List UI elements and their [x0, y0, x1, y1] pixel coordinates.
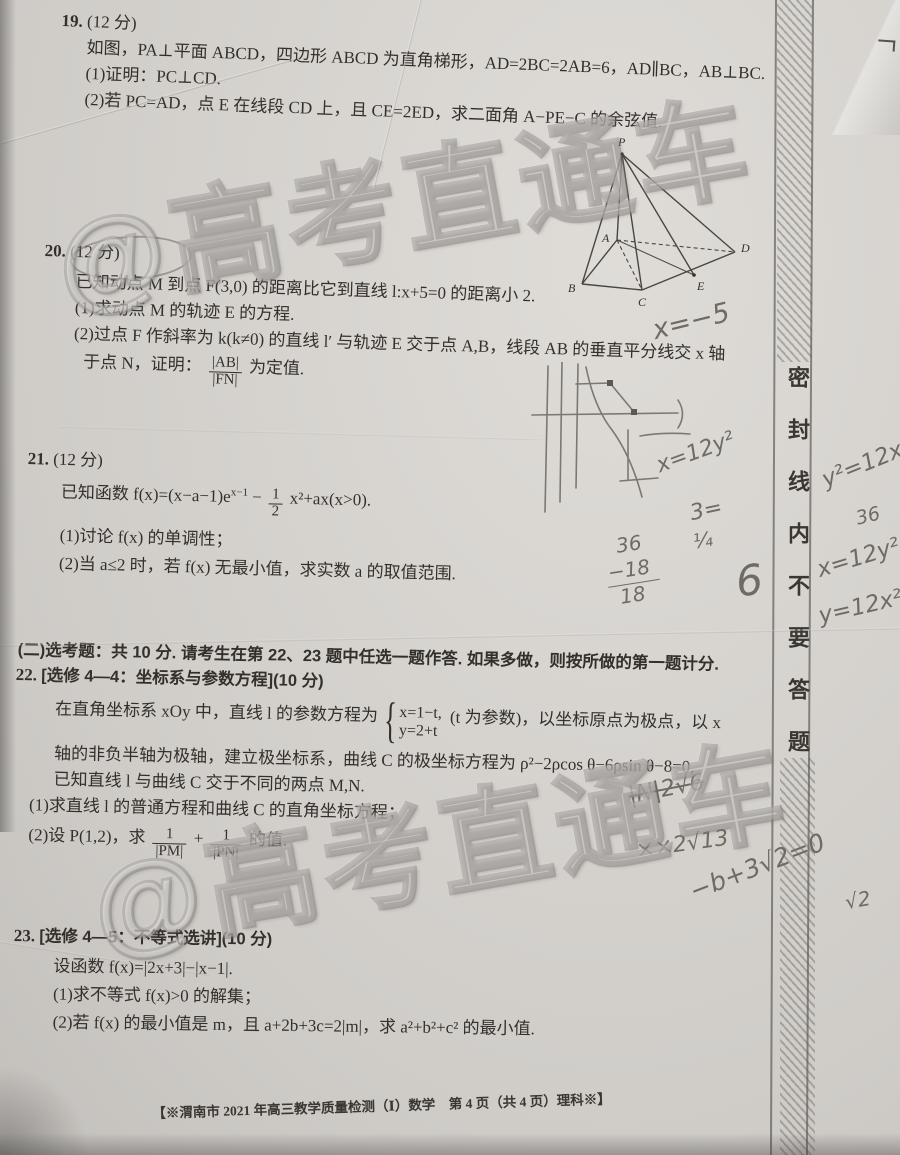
seal-hatch-top: [777, 0, 812, 362]
handwriting-y-12x2: y=12x²: [816, 585, 900, 629]
q22-frac2-numerator: 1: [210, 828, 242, 845]
seal-hatch-bottom: [780, 758, 815, 1155]
q23-title: [选修 4—5：不等式选讲](10 分): [39, 927, 272, 948]
q19-item-1: (1)证明：PC⊥CD.: [85, 63, 221, 90]
q22-stem-line1: 在直角坐标系 xOy 中，直线 l 的参数方程为 x=1−t, y=2+t (t…: [55, 697, 722, 748]
q19-points: (12 分): [87, 12, 137, 33]
fold-crease: [60, 426, 540, 441]
question-23: 23. [选修 4—5：不等式选讲](10 分) 设函数 f(x)=|2x+3|…: [12, 925, 754, 1055]
q22-fraction-PM: 1 |PM|: [152, 827, 186, 860]
photo-corner-shadow: [0, 1065, 90, 1155]
paper-corner-crease: [830, 0, 900, 135]
q21-stem: 已知函数 f(x)=(x−a−1)ex−1 − 1 2 x²+ax(x>0).: [60, 481, 371, 523]
q19-number: 19.: [61, 11, 83, 31]
q20-item-2b-suffix: 为定值.: [249, 357, 305, 378]
q22-item-2-prefix: (2)设 P(1,2)，求: [28, 825, 145, 846]
q19-label-P: P: [617, 135, 626, 149]
photo-edge-shadow-bottom: [0, 1133, 900, 1155]
page-footer: 【※渭南市 2021 年高三教学质量检测（Ⅰ）数学 第 4 页（共 4 页）理科…: [152, 1088, 611, 1122]
q19-item-2: (2)若 PC=AD，点 E 在线段 CD 上，且 CE=2ED，求二面角 A−…: [84, 89, 663, 133]
handwriting-18: 18: [618, 581, 647, 609]
q20-fraction-AB-FN: |AB| |FN|: [208, 355, 242, 389]
q23-number: 23.: [14, 926, 36, 945]
q22-stem-suffix: (t 为参数)，以坐标原点为极点，以 x: [450, 707, 721, 732]
q20-item-2b: 于点 N，证明： |AB| |FN| 为定值.: [82, 351, 304, 391]
q21-frac-numerator: 1: [269, 487, 283, 504]
q20-item-1: (1)求动点 M 的轨迹 E 的方程.: [75, 297, 295, 326]
q22-item-2: (2)设 P(1,2)，求 1 |PM| + 1 |PN| 的值.: [28, 824, 287, 862]
q19-label-E: E: [696, 279, 705, 293]
q22-item-1: (1)求直线 l 的普通方程和曲线 C 的直角坐标方程；: [29, 794, 405, 824]
q21-fraction-half: 1 2: [268, 487, 282, 520]
q21-minus: −: [252, 488, 262, 507]
q23-item-1: (1)求不等式 f(x)>0 的解集；: [53, 984, 261, 1009]
q21-exponent: x−1: [231, 486, 249, 498]
q22-stem-line3: 已知直线 l 与曲线 C 交于不同的两点 M,N.: [53, 769, 365, 798]
q22-frac1-numerator: 1: [153, 827, 187, 844]
q21-number: 21.: [27, 449, 49, 469]
handwriting-root2: √2: [843, 886, 872, 914]
handwriting-quarter: ¼: [691, 526, 714, 553]
figure-pyramid: P A B C D E: [560, 132, 780, 312]
q19-label-A: A: [601, 231, 610, 245]
q22-plus-sign: +: [193, 829, 203, 848]
q21-item-1: (1)讨论 f(x) 的单调性；: [59, 525, 232, 552]
q20-item-2b-prefix: 于点 N，证明：: [83, 352, 202, 375]
handwriting-x-12y2-b: x=12y²: [814, 533, 900, 583]
q20-frac-denominator: |FN|: [208, 372, 241, 389]
handwriting-36-b: 36: [854, 502, 883, 529]
seal-strip-text: 密封线内不要答题: [781, 366, 813, 782]
q22-case-y: y=2+t: [399, 722, 442, 741]
handwriting-y2-12x: y²=12x: [818, 437, 900, 493]
q21-stem-prefix: 已知函数 f(x)=(x−a−1)e: [61, 483, 231, 506]
q22-frac2-denominator: |PN|: [210, 845, 242, 861]
handwriting-6: 6: [733, 555, 766, 607]
q22-number: 22.: [16, 665, 38, 684]
q22-item-2-suffix: 的值.: [249, 830, 288, 850]
q21-points: (12 分): [53, 450, 103, 470]
q22-case-x: x=1−t,: [399, 704, 442, 723]
corner-registration-mark: [878, 39, 896, 51]
q21-stem-suffix: x²+ax(x>0).: [290, 489, 372, 510]
q20-number: 20.: [44, 241, 66, 261]
handwriting-36-a: 36: [614, 530, 643, 558]
figure-parabola-sketch: [528, 362, 703, 517]
q22-fraction-PN: 1 |PN|: [210, 828, 242, 861]
q19-label-B: B: [568, 281, 576, 295]
q22-stem-prefix: 在直角坐标系 xOy 中，直线 l 的参数方程为: [55, 699, 378, 725]
q22-parametric-equations: x=1−t, y=2+t: [386, 704, 442, 742]
q19-label-D: D: [740, 241, 750, 255]
photo-edge-shadow-left: [0, 0, 16, 832]
q21-item-2: (2)当 a≤2 时，若 f(x) 无最小值，求实数 a 的取值范围.: [59, 553, 456, 585]
q23-stem: 设函数 f(x)=|2x+3|−|x−1|.: [53, 956, 233, 981]
q19-label-C: C: [638, 295, 647, 309]
q23-item-2: (2)若 f(x) 的最小值是 m，且 a+2b+3c=2|m|，求 a²+b²…: [52, 1012, 534, 1041]
q22-title: [选修 4—4：坐标系与参数方程](10 分): [41, 667, 324, 691]
q22-frac1-denominator: |PM|: [152, 844, 186, 860]
exam-paper-page: 19. (12 分) 如图，PA⊥平面 ABCD，四边形 ABCD 为直角梯形，…: [0, 0, 900, 1155]
q21-frac-denominator: 2: [268, 504, 282, 520]
